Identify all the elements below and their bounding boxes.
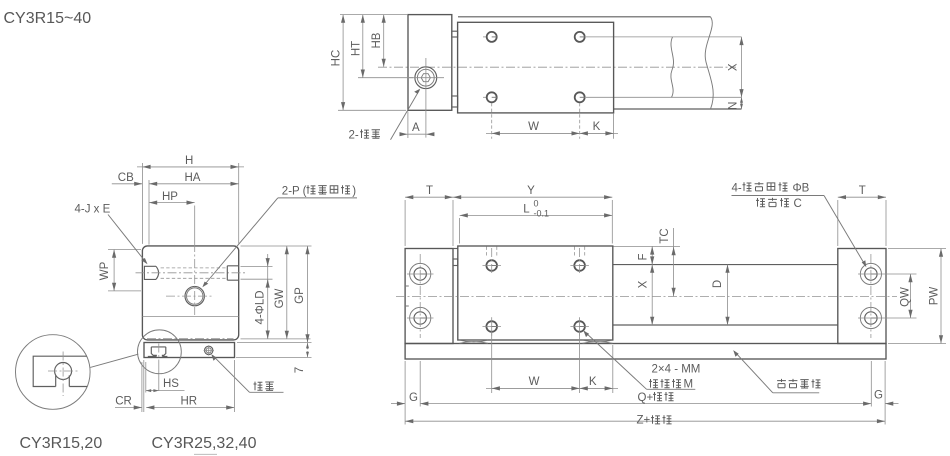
svg-text:-0.1: -0.1 [534,209,550,219]
svg-text:C: C [794,198,802,210]
svg-text:CY3R15~40: CY3R15~40 [4,10,92,27]
svg-text:K: K [593,121,601,133]
svg-text:QW: QW [899,287,911,307]
svg-text:4-J x E: 4-J x E [75,204,111,216]
svg-text:HR: HR [180,396,197,408]
svg-text:GW: GW [274,288,286,308]
svg-text:G: G [409,392,418,404]
svg-text:T: T [426,185,433,197]
svg-text:H: H [185,155,193,167]
svg-text:G: G [874,390,883,402]
svg-text:7: 7 [294,367,306,373]
svg-text:HS: HS [163,378,179,390]
svg-text:CY3R25,32,40: CY3R25,32,40 [152,435,257,452]
svg-text:CY3R15,20: CY3R15,20 [20,435,103,452]
svg-text:HA: HA [185,172,201,184]
svg-text:Z+: Z+ [637,415,651,427]
svg-text:4-ΦLD: 4-ΦLD [255,290,267,324]
svg-text:): ) [352,185,356,197]
svg-text:F: F [637,253,649,260]
svg-text:T: T [859,185,866,197]
svg-text:HB: HB [371,32,383,48]
svg-text:W: W [529,376,540,388]
svg-text:TC: TC [659,228,671,243]
svg-text:HC: HC [331,50,343,67]
svg-text:4-: 4- [732,183,742,195]
svg-text:Y: Y [527,185,535,197]
svg-text:K: K [589,376,597,388]
svg-text:GP: GP [294,287,306,304]
svg-text:CR: CR [115,396,132,408]
svg-text:PW: PW [929,287,941,306]
svg-text:2×4 - MM: 2×4 - MM [652,364,701,376]
svg-text:ΦB: ΦB [793,183,810,195]
svg-text:2-P (: 2-P ( [282,185,307,197]
svg-text:WP: WP [99,261,111,280]
svg-text:D: D [712,280,724,288]
svg-text:A: A [412,122,420,134]
svg-text:L: L [523,204,530,216]
svg-text:X: X [727,63,739,71]
svg-text:W: W [528,121,539,133]
svg-text:2-: 2- [349,130,359,142]
svg-text:X: X [637,280,649,288]
svg-text:0: 0 [534,199,539,209]
svg-text:HT: HT [350,41,362,56]
svg-text:Q+: Q+ [638,392,654,404]
svg-text:HP: HP [162,191,178,203]
svg-text:CB: CB [118,172,134,184]
svg-text:N: N [727,102,739,110]
